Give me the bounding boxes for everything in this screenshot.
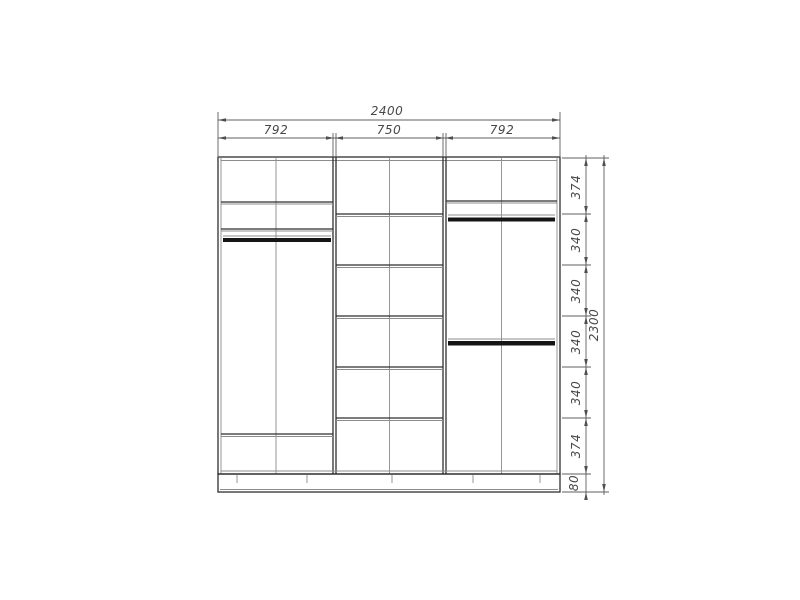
- plinth: [218, 471, 560, 492]
- dim-section-width-2-label: 750: [377, 123, 401, 137]
- dim-plinth-height-label: 80: [567, 475, 581, 491]
- dim-height-segment-3-label: 340: [569, 279, 583, 303]
- dim-height-segment-5-label: 340: [569, 381, 583, 405]
- cabinet-structure: [218, 157, 560, 492]
- dim-total-width-label: 2400: [371, 104, 404, 118]
- hanging-rod-right-upper: [448, 218, 555, 222]
- dim-height-segment-2-label: 340: [569, 228, 583, 252]
- dim-height-segment-4-label: 340: [569, 330, 583, 354]
- dim-height-segment-1-label: 374: [569, 175, 583, 199]
- dim-section-width-1-label: 792: [264, 123, 288, 137]
- dim-section-width-3-label: 792: [490, 123, 514, 137]
- hanging-rod-left: [223, 238, 331, 242]
- hanging-rod-right-lower: [448, 341, 555, 346]
- drawing-canvas: 2400 792 750 792 374 340 340 340 340 374…: [0, 0, 800, 600]
- dim-height-segment-6-label: 374: [569, 434, 583, 458]
- dim-total-height-label: 2300: [587, 309, 601, 342]
- wardrobe-front-view-drawing: 2400 792 750 792 374 340 340 340 340 374…: [0, 0, 800, 600]
- left-section-shelves: [221, 202, 333, 437]
- dimension-annotations: 2400 792 750 792 374 340 340 340 340 374…: [218, 104, 609, 500]
